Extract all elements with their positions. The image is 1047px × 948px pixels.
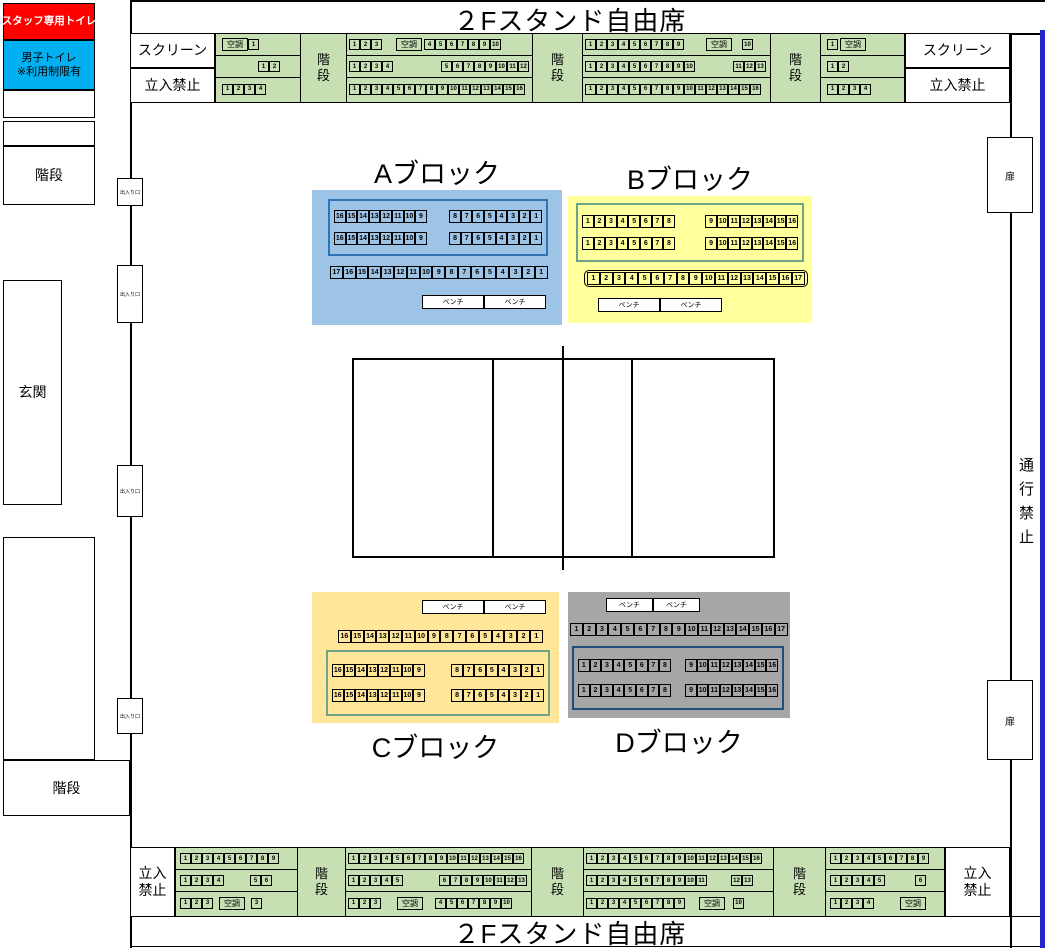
seat-cell: 16 [332,664,344,677]
seat-cell: 7 [647,623,660,636]
seat-cell: 6 [634,623,647,636]
seat-cell: 16 [332,689,344,702]
seat-cell: 12 [470,84,481,95]
volleyball-court [352,358,775,558]
seat-cell: 4 [213,875,224,886]
seat-cell: 9 [673,61,684,72]
seat-cell: 9 [673,39,684,50]
seat-cell: 6 [466,630,479,643]
seat-cell: 5 [630,853,641,864]
seat-cell: 5 [392,853,403,864]
seat-cell: 16 [766,659,778,672]
seat-cell: 14 [728,84,739,95]
seat-cell: 15 [344,689,356,702]
aircon-label: 空調 [219,897,245,910]
seat-cell: 1 [830,898,841,909]
seat-cell: 9 [689,272,702,285]
seat-cell: 6 [640,39,651,50]
seat-cell: 13 [717,84,728,95]
seat-cell: 14 [743,659,755,672]
seat-cell: 10 [402,664,414,677]
stairs-cell: 階 段 [532,848,584,916]
seat-cell: 6 [471,266,484,279]
seat-group-left: 12345678 [582,237,675,250]
seat-cell: 4 [424,39,435,50]
seat-cell: 6 [885,853,896,864]
stand-seat-row: 123456 [176,870,297,892]
seat-cell: 10 [501,898,512,909]
doorway-4-label: 出入り口 [120,713,140,720]
seat-cell: 4 [381,853,392,864]
seat-cell: 5 [250,875,261,886]
left-room-small-2 [3,121,95,146]
seat-cell: 11 [695,84,706,95]
seat-cell: 14 [368,266,381,279]
seat-cell: 9 [685,659,697,672]
seat-group-right: 910111213141516 [705,237,798,250]
block-seat-row: 12345678910111213141516 [578,659,778,672]
stand-seat-row: 123456 [826,870,946,892]
seat-cell: 2 [596,84,607,95]
seat-cell: 17 [330,266,343,279]
door-top: 扉 [987,137,1033,213]
seat-cell: 10 [404,210,416,223]
seat-cell: 4 [863,898,874,909]
seat-cell: 5 [638,272,651,285]
stand-seat-section: 1234567891234561234空調 [826,848,946,916]
seat-cell: 4 [860,84,871,95]
seat-cell: 2 [517,630,530,643]
seat-cell: 4 [498,689,510,702]
stand-seat-row: 12 [216,56,300,78]
seat-cell: 11 [696,875,707,886]
arena-floor-plan: ２Fスタンド自由席 ２Fスタンド自由席 スタッフ専用トイレ 男子トイレ ※利用制… [0,0,1047,948]
seat-cell: 11 [728,237,740,250]
seat-cell: 13 [752,215,764,228]
stand-seat-row: 1234 [216,78,300,100]
seat-cell: 5 [874,853,885,864]
seat-group-right: 87654321 [449,210,542,223]
seat-cell: 13 [755,61,766,72]
aircon-label: 空調 [699,897,725,910]
seat-cell: 14 [763,237,775,250]
seat-cell: 2 [359,898,370,909]
seat-cell: 8 [662,39,673,50]
seat-cell: 7 [246,853,257,864]
seat-cell: 10 [733,898,744,909]
seat-cell: 9 [672,623,685,636]
doorway-3-label: 出入り口 [120,488,140,495]
seat-cell: 5 [392,875,403,886]
seat-cell: 7 [458,266,471,279]
stand-seat-row: 空調1 [216,34,300,56]
seat-cell: 16 [750,84,761,95]
seat-cell: 13 [724,623,737,636]
seat-cell: 9 [479,39,490,50]
seat-cell: 4 [435,898,446,909]
seat-cell: 8 [663,875,674,886]
seat-cell: 13 [732,684,744,697]
seat-cell: 16 [338,630,351,643]
seat-cell: 7 [664,272,677,285]
seat-cell: 8 [426,84,437,95]
block-a-long-row: 1716151413121110987654321 [330,266,548,279]
seat-cell: 6 [651,272,664,285]
seat-cell: 2 [841,875,852,886]
seat-cell: 9 [415,232,427,245]
seat-cell: 15 [502,853,513,864]
seat-cell: 10 [685,875,696,886]
seat-cell: 5 [224,853,235,864]
seat-cell: 5 [630,898,641,909]
seat-cell: 12 [469,853,480,864]
block-c-title: Cブロック [312,726,559,765]
gap [707,880,731,881]
bench-cell: ベンチ [598,298,660,312]
seat-cell: 6 [640,61,651,72]
seat-cell: 10 [684,61,695,72]
seat-cell: 5 [479,630,492,643]
seat-cell: 7 [652,875,663,886]
seat-cell: 2 [522,266,535,279]
seat-cell: 3 [608,853,619,864]
seat-cell: 8 [663,898,674,909]
seat-cell: 3 [605,215,617,228]
stand-seat-section: 123456789123456123空調3 [176,848,298,916]
seat-cell: 15 [356,266,369,279]
stairs-cell: 階 段 [298,848,346,916]
seat-cell: 10 [685,853,696,864]
wall-top [130,0,1045,2]
seat-cell: 9 [685,684,697,697]
seat-cell: 7 [896,853,907,864]
seat-cell: 6 [640,84,651,95]
left-stairs-top-box: 階段 [3,146,95,205]
seat-cell: 4 [492,630,505,643]
block-c: Cブロック16151413121110987654321161514131211… [312,592,559,723]
stairs-cell: 階 段 [771,34,821,102]
seat-cell: 7 [651,39,662,50]
seat-cell: 13 [732,659,744,672]
seat-cell: 10 [717,215,729,228]
seat-group-left: 12345678 [582,215,675,228]
seat-cell: 14 [763,215,775,228]
seat-cell: 3 [370,853,381,864]
seat-cell: 8 [663,237,675,250]
seat-cell: 12 [394,266,407,279]
seat-cell: 16 [513,853,524,864]
seat-group-left: 12345678 [578,684,671,697]
net-center-line [562,346,564,570]
seat-cell: 5 [629,39,640,50]
seat-cell: 8 [451,664,463,677]
seat-cell: 7 [652,215,664,228]
doorway-2: 出入り口 [117,265,143,323]
seat-cell: 2 [191,898,202,909]
gap [684,44,706,45]
seat-cell: 15 [749,623,762,636]
seat-cell: 4 [255,84,266,95]
seat-cell: 13 [481,84,492,95]
seat-cell: 15 [739,84,750,95]
seat-group-left: 161514131211109 [334,232,427,245]
seat-cell: 4 [213,853,224,864]
seat-cell: 3 [370,898,381,909]
stand-seat-row: 1空調 [821,34,906,56]
seat-cell: 4 [863,875,874,886]
seat-cell: 2 [519,210,531,223]
block-c-seat-box: 1615141312111098765432116151413121110987… [326,650,550,716]
seat-cell: 5 [446,898,457,909]
seat-cell: 11 [402,630,415,643]
seat-cell: 4 [382,61,393,72]
gap [393,66,441,67]
seat-cell: 3 [251,898,262,909]
seat-cell: 13 [480,853,491,864]
seat-cell: 12 [728,272,741,285]
block-b-seat-box: 1234567891011121314151612345678910111213… [576,203,804,262]
seat-cell: 2 [360,84,371,95]
attack-line-left [492,360,494,556]
staff-toilet-label: スタッフ専用トイレ [2,15,97,29]
seat-cell: 14 [357,232,369,245]
screen-label-top-left: スクリーン [130,33,215,68]
seat-cell: 3 [509,266,522,279]
seat-cell: 3 [852,875,863,886]
seat-cell: 6 [640,237,652,250]
left-room-tall [3,537,95,760]
seat-cell: 3 [607,61,618,72]
seat-cell: 3 [613,272,626,285]
doorway-2-label: 出入り口 [120,291,140,298]
stand-seat-section: 1234567891011121314151612345678910111213… [584,848,774,916]
seat-cell: 10 [702,272,715,285]
seat-cell: 17 [792,272,805,285]
no-entry-label-top-left: 立入禁止 [130,68,215,103]
seat-cell: 16 [751,853,762,864]
seat-cell: 14 [491,853,502,864]
seat-cell: 1 [248,39,259,50]
seat-cell: 6 [636,659,648,672]
seat-cell: 9 [415,210,427,223]
stand-seat-row: 1234 [821,78,906,100]
seat-cell: 13 [752,237,764,250]
seat-cell: 4 [496,210,508,223]
seat-cell: 14 [492,84,503,95]
seat-cell: 12 [518,61,529,72]
seat-cell: 2 [841,898,852,909]
seat-cell: 2 [583,623,596,636]
seat-cell: 4 [863,853,874,864]
doorway-1: 出入り口 [117,178,143,206]
top-stand-seating: 空調1121234階 段123空調45678910123456789101112… [215,33,905,103]
doorway-3: 出入り口 [117,465,143,517]
seat-cell: 4 [382,84,393,95]
seat-cell: 6 [641,875,652,886]
top-right-labels: スクリーン 立入禁止 [905,33,1010,103]
seat-cell: 16 [762,623,775,636]
stand-seat-row: 12 [821,56,906,78]
seat-cell: 2 [359,853,370,864]
seat-cell: 5 [486,689,498,702]
staff-toilet-box: スタッフ専用トイレ [3,3,95,40]
seat-cell: 1 [578,659,590,672]
seat-cell: 8 [659,684,671,697]
seat-cell: 7 [651,61,662,72]
seat-cell: 2 [597,875,608,886]
stand-seat-row: 12345678910111213 [583,56,770,78]
seat-cell: 2 [521,689,533,702]
stand-seat-section: 空調1121234 [216,34,301,102]
seat-cell: 5 [630,875,641,886]
seat-cell: 1 [827,61,838,72]
seat-cell: 15 [755,659,767,672]
block-seat-row: 16151413121110987654321 [332,664,544,677]
aircon-label: 空調 [397,897,423,910]
seat-cell: 8 [663,853,674,864]
stand-seat-row: 12345678910111213141516 [347,78,532,100]
stand-seat-section: 1空調121234 [821,34,906,102]
seat-cell: 10 [684,84,695,95]
seat-cell: 3 [509,664,521,677]
seat-cell: 13 [367,664,379,677]
seat-cell: 10 [742,39,753,50]
seat-cell: 10 [447,853,458,864]
seat-cell: 16 [334,210,346,223]
seat-cell: 8 [907,853,918,864]
seat-cell: 4 [618,39,629,50]
seat-cell: 12 [380,210,392,223]
gap [382,44,396,45]
seat-cell: 2 [597,853,608,864]
mens-toilet-label: 男子トイレ ※利用制限有 [17,51,81,80]
seat-cell: 2 [191,853,202,864]
seat-cell: 9 [485,61,496,72]
block-a-seat-box: 1615141312111098765432116151413121110987… [328,199,548,256]
seat-cell: 2 [359,875,370,886]
doorway-4: 出入り口 [117,698,143,734]
seat-cell: 1 [582,237,594,250]
seat-cell: 11 [728,215,740,228]
seat-cell: 7 [648,659,660,672]
seat-cell: 12 [378,689,390,702]
stand-seat-row: 123空調45678910 [346,892,531,914]
seat-cell: 14 [743,684,755,697]
no-passage-label: 通行禁止 [1011,420,1040,590]
seat-cell: 3 [371,61,382,72]
seat-cell: 3 [371,39,382,50]
seat-cell: 13 [516,875,527,886]
block-seat-row: 12345678910111213141516 [578,684,778,697]
seat-cell: 8 [468,39,479,50]
seat-cell: 2 [360,39,371,50]
seat-cell: 16 [786,237,798,250]
seat-cell: 1 [530,630,543,643]
seat-cell: 6 [474,664,486,677]
seat-cell: 10 [490,39,501,50]
seat-cell: 3 [601,684,613,697]
seat-cell: 3 [852,898,863,909]
seat-cell: 1 [348,875,359,886]
seat-cell: 2 [521,664,533,677]
aircon-label: 空調 [706,38,732,51]
seat-cell: 1 [532,689,544,702]
stand-seat-section: 123456789空調10123456789101112131234567891… [583,34,771,102]
seat-cell: 1 [830,853,841,864]
block-b-long-row: 1234567891011121314151617 [584,270,808,287]
seat-cell: 2 [360,61,371,72]
seat-cell: 9 [673,84,684,95]
seat-cell: 1 [585,84,596,95]
gap [381,903,397,904]
seat-cell: 4 [617,215,629,228]
seat-cell: 1 [222,84,233,95]
stand-seat-row: 123456789空調10 [584,892,773,914]
seat-cell: 1 [586,875,597,886]
seat-cell: 11 [390,664,402,677]
seat-cell: 4 [619,898,630,909]
seat-cell: 5 [621,623,634,636]
seat-cell: 6 [235,853,246,864]
seat-cell: 11 [392,210,404,223]
aircon-label: 空調 [222,38,248,51]
gap [403,880,439,881]
seat-cell: 7 [414,853,425,864]
seat-cell: 3 [605,237,617,250]
seat-cell: 16 [514,84,525,95]
seat-cell: 15 [344,664,356,677]
seat-group-left: 12345678 [578,659,671,672]
seat-cell: 8 [461,875,472,886]
seat-cell: 12 [740,237,752,250]
right-boundary-line [1040,30,1045,948]
seat-cell: 13 [376,630,389,643]
seat-cell: 9 [705,215,717,228]
seat-cell: 15 [775,237,787,250]
seat-cell: 6 [446,39,457,50]
seat-cell: 8 [659,659,671,672]
stairs-cell: 階 段 [774,848,826,916]
seat-cell: 10 [697,684,709,697]
seat-cell: 4 [613,684,625,697]
seat-cell: 6 [641,853,652,864]
seat-cell: 1 [180,898,191,909]
bottom-title: ２Fスタンド自由席 [130,914,1010,948]
seat-cell: 10 [697,659,709,672]
seat-cell: 1 [586,853,597,864]
seat-cell: 7 [648,684,660,697]
stand-seat-section: 1234567891011121314151612345678910111213… [346,848,532,916]
seat-cell: 6 [640,215,652,228]
seat-cell: 8 [449,210,461,223]
seat-cell: 5 [628,215,640,228]
seat-cell: 9 [674,853,685,864]
seat-cell: 9 [472,875,483,886]
seat-cell: 11 [390,689,402,702]
block-b-benches: ベンチベンチ [598,298,722,312]
seat-cell: 13 [718,853,729,864]
corridor-line-bottom [1010,916,1042,918]
seat-cell: 11 [507,61,518,72]
seat-cell: 10 [483,875,494,886]
seat-cell: 11 [708,684,720,697]
seat-cell: 1 [530,210,542,223]
seat-cell: 8 [425,853,436,864]
seat-cell: 2 [191,875,202,886]
block-a-benches: ベンチベンチ [422,295,546,309]
stand-seat-row: 12345678910111213141516 [583,78,770,100]
gap [224,880,250,881]
